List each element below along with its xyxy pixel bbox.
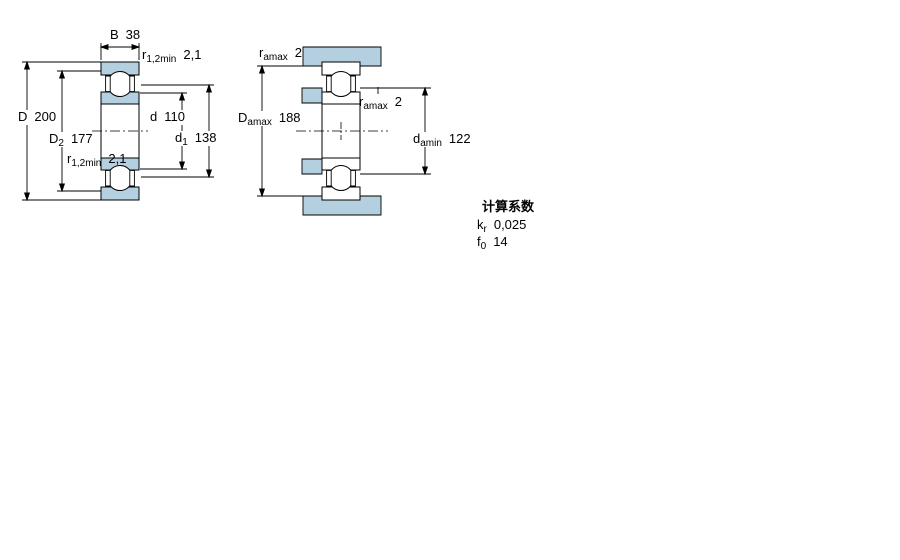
factor-row-f0: f014 — [477, 235, 508, 250]
dim-symbol: D — [18, 109, 27, 124]
shield-icon — [351, 76, 356, 92]
arrowhead — [25, 193, 30, 200]
dim-value: 2,1 — [183, 47, 201, 62]
dim-value: 2 — [295, 45, 302, 60]
dim-subscript: amin — [420, 138, 442, 149]
dim-label-r12min-bottom: r1,2min2,1 — [67, 152, 126, 167]
factor-row-kr: kr0,025 — [477, 218, 526, 233]
arrowhead — [260, 189, 265, 196]
dim-label-Damax: Damax188 — [236, 111, 303, 126]
dim-label-damin: damin122 — [411, 132, 473, 147]
factor-symbol: k — [477, 217, 484, 232]
arrowhead — [60, 71, 65, 78]
dim-value: 177 — [71, 131, 93, 146]
ball-top — [108, 72, 133, 97]
dim-symbol: B — [110, 27, 119, 42]
shield-icon — [351, 170, 356, 186]
shield-icon — [106, 76, 111, 92]
arrowhead — [180, 93, 185, 100]
shield-icon — [130, 170, 135, 186]
dim-label-B: B38 — [110, 28, 140, 43]
left-bearing-section — [92, 62, 148, 200]
dim-subscript: amax — [247, 117, 271, 128]
dim-value: 38 — [126, 27, 140, 42]
dim-label-d: d110 — [148, 110, 187, 125]
dim-value: 122 — [449, 131, 471, 146]
factor-value: 0,025 — [494, 217, 527, 232]
arrowhead — [60, 184, 65, 191]
arrowhead — [207, 170, 212, 177]
dim-value: 110 — [164, 109, 185, 124]
calculation-factors-title: 计算系数 — [482, 196, 534, 215]
factor-subscript: 0 — [481, 241, 487, 252]
arrowhead — [180, 162, 185, 169]
dim-label-ramax-mid: ramax2 — [359, 95, 402, 110]
dim-subscript: amax — [263, 52, 287, 63]
dim-value: 200 — [34, 109, 56, 124]
arrowhead — [207, 85, 212, 92]
dim-subscript: amax — [363, 101, 387, 112]
dim-symbol: D — [49, 131, 58, 146]
dim-label-D2: D2177 — [47, 132, 95, 147]
dim-value: 2 — [395, 94, 402, 109]
ball-top — [329, 72, 354, 97]
arrowhead — [132, 45, 139, 50]
shield-icon — [327, 76, 332, 92]
dim-label-d1: d1138 — [173, 131, 219, 146]
factor-value: 14 — [493, 234, 507, 249]
dim-value: 138 — [195, 130, 217, 145]
shield-icon — [130, 76, 135, 92]
dim-label-ramax-top: ramax2 — [259, 46, 302, 61]
dim-label-D: D200 — [16, 110, 58, 125]
dim-subscript: 1,2min — [146, 54, 176, 65]
dim-symbol: D — [238, 110, 247, 125]
arrowhead — [25, 62, 30, 69]
dim-subscript: 2 — [58, 138, 64, 149]
dim-symbol: d — [150, 109, 157, 124]
bearing-drawings-svg — [0, 0, 900, 560]
technical-drawing-page: B38 r1,2min2,1 D200 D2177 d110 d1138 r1,… — [0, 0, 900, 560]
ball-bottom — [329, 166, 354, 191]
dim-value: 2,1 — [108, 151, 126, 166]
arrowhead — [101, 45, 108, 50]
dim-subscript: 1 — [182, 137, 188, 148]
dim-subscript: 1,2min — [71, 158, 101, 169]
right-mounting-section — [296, 47, 388, 215]
shield-icon — [106, 170, 111, 186]
arrowhead — [260, 66, 265, 73]
shaft-shoulder-bottom — [302, 159, 322, 174]
arrowhead — [423, 167, 428, 174]
arrowhead — [423, 88, 428, 95]
ball-bottom — [108, 166, 133, 191]
dim-value: 188 — [279, 110, 301, 125]
shaft-shoulder-top — [302, 88, 322, 103]
factor-subscript: r — [484, 224, 487, 235]
dim-label-r12min-top: r1,2min2,1 — [142, 48, 201, 63]
shield-icon — [327, 170, 332, 186]
